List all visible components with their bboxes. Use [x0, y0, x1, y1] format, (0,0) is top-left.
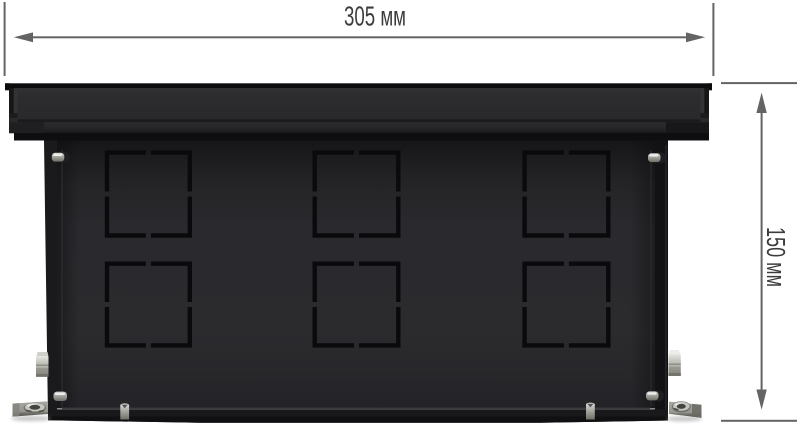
- svg-text:150 мм: 150 мм: [761, 227, 789, 287]
- svg-text:305 мм: 305 мм: [344, 1, 406, 32]
